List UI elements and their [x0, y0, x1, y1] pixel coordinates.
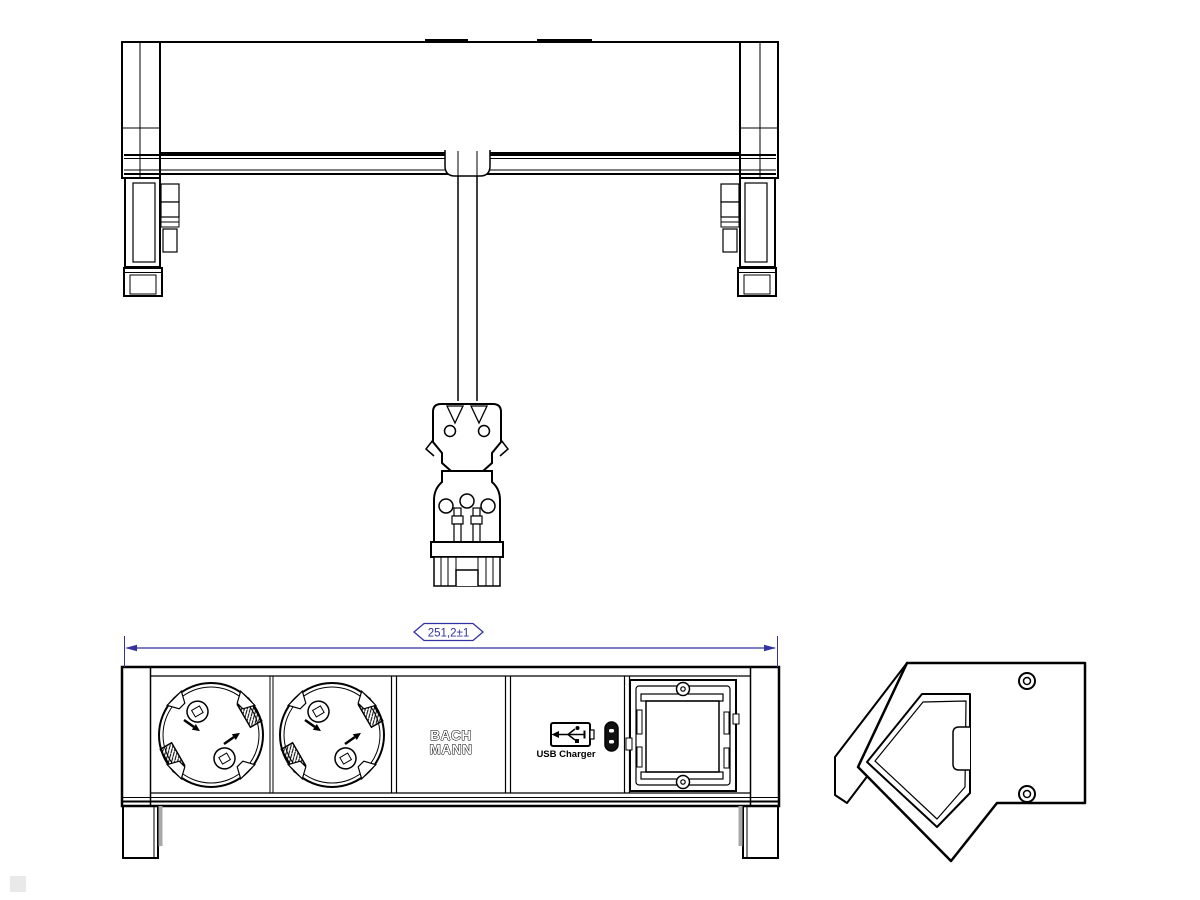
brand-logo-module: BACH MANN: [430, 728, 473, 757]
custom-module-slot: [626, 680, 739, 791]
brand-logo-line2: MANN: [430, 742, 473, 757]
usb-a-port-icon: [551, 723, 594, 746]
screw-icon: [677, 683, 690, 696]
drawing-sheet: BACH MANN USB Charger: [0, 0, 1200, 900]
dimension-value: 251,2±1: [428, 628, 470, 640]
screw-icon: [677, 776, 690, 789]
brand-logo-line1: BACH: [430, 728, 471, 743]
watermark: [10, 876, 26, 892]
usb-c-port-icon: [605, 722, 618, 751]
technical-drawing-page: BACH MANN USB Charger: [0, 0, 1200, 900]
usb-module-label: USB Charger: [536, 749, 595, 760]
cable-gland: [445, 150, 490, 176]
recess-latch-tab: [953, 727, 970, 770]
gst18-plug-connector: [426, 404, 508, 586]
